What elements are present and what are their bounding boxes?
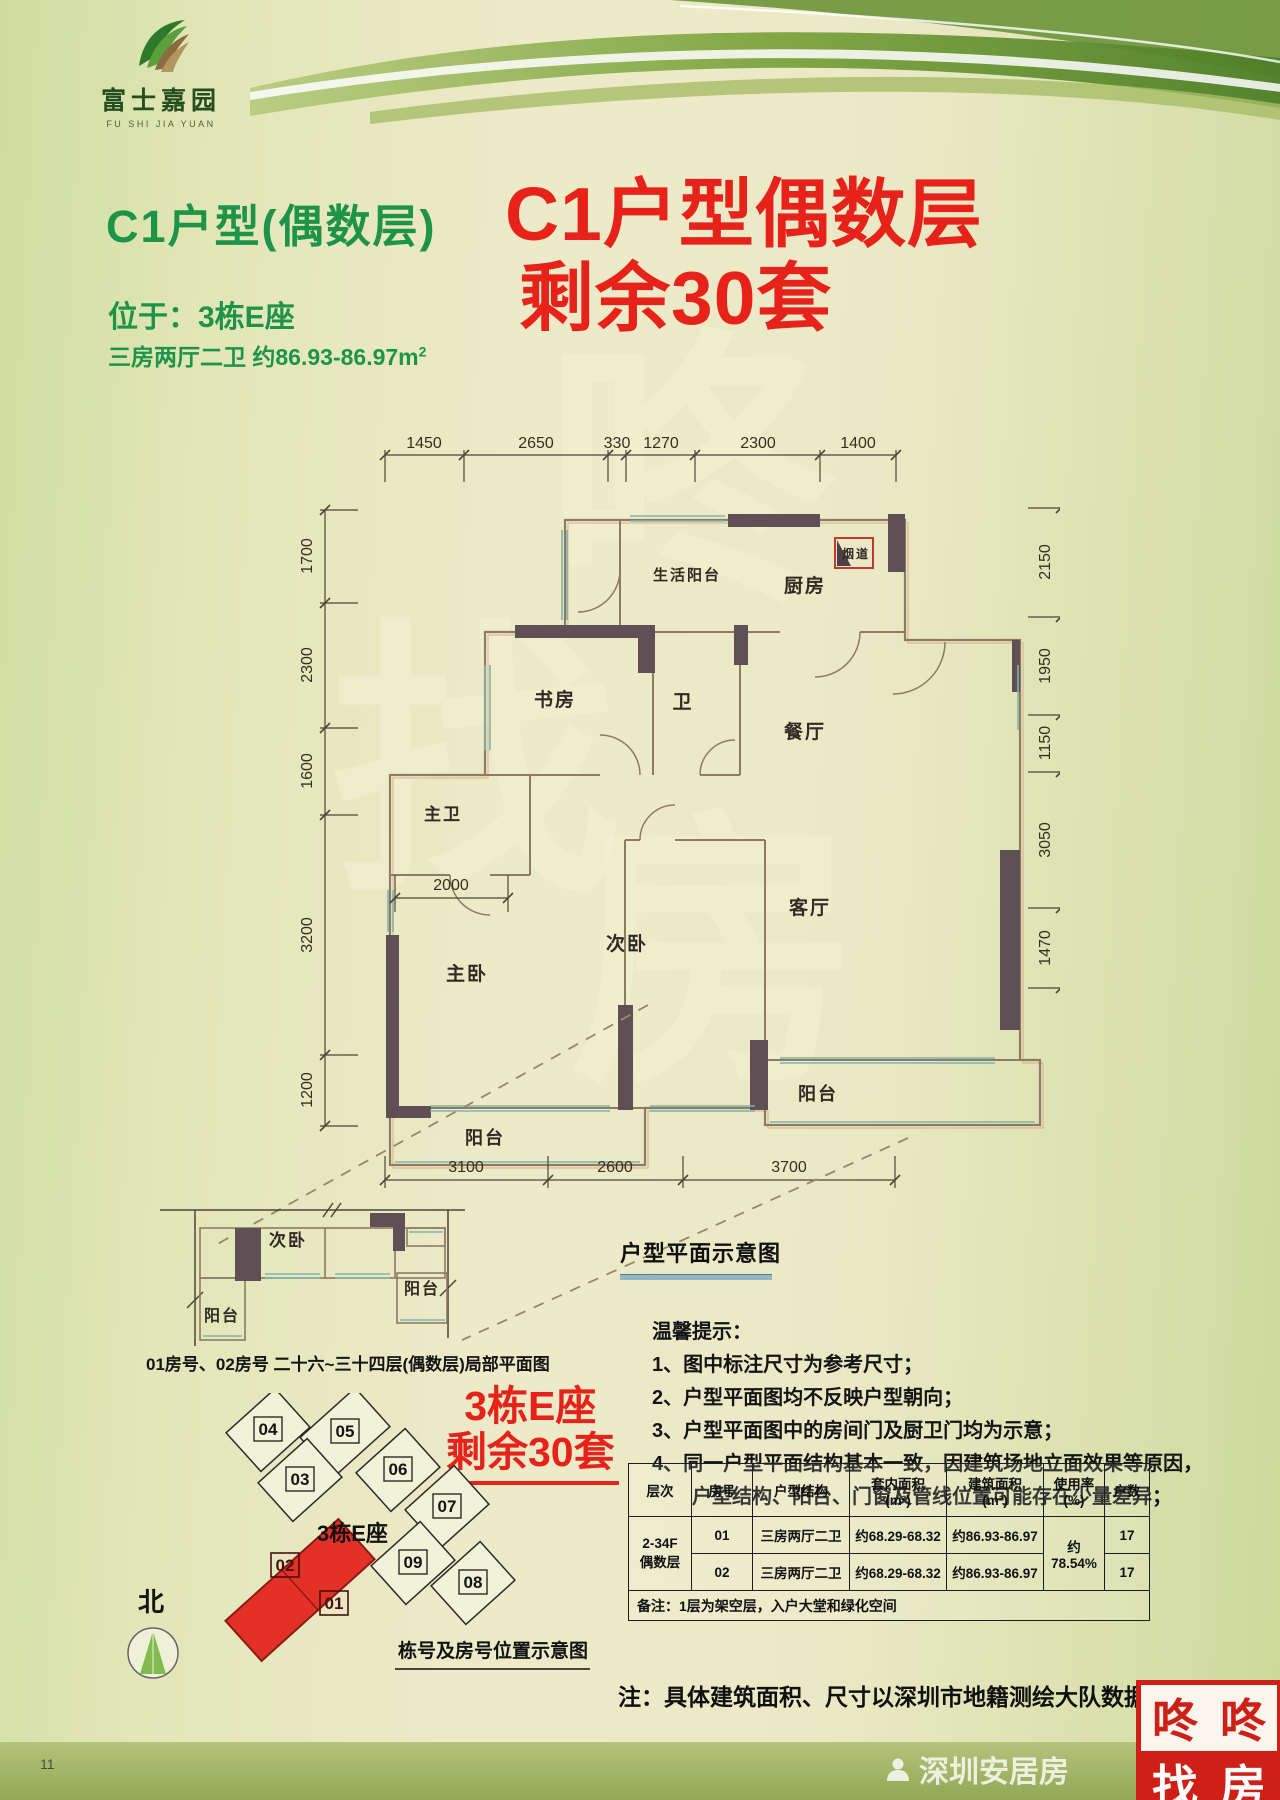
partial-plan-structural xyxy=(235,1213,405,1281)
partial-plan-caption: 01房号、02房号 二十六~三十四层(偶数层)局部平面图 xyxy=(146,1350,550,1375)
site-diagram: 04 05 03 06 07 09 08 02 01 3栋E座 北 栋号及房号位… xyxy=(120,1393,620,1728)
flue-box: 烟道 xyxy=(835,538,873,568)
warm-tip-2: 2、户型平面图均不反映户型朝向； xyxy=(652,1382,1203,1415)
svg-text:2300: 2300 xyxy=(740,435,776,452)
svg-text:1470: 1470 xyxy=(1037,930,1054,966)
room-label-balcony-right: 阳台 xyxy=(798,1083,838,1104)
stamp-char-2: 咚 xyxy=(1209,1685,1277,1751)
plan-schematic-caption-text: 户型平面示意图 xyxy=(620,1236,781,1268)
footer-watermark: 深圳安居房 xyxy=(884,1747,1069,1791)
unit-spec-text: 三房两厅二卫 约86.93-86.97m xyxy=(108,344,419,370)
stamp-char-1: 咚 xyxy=(1141,1685,1209,1751)
svg-text:3700: 3700 xyxy=(771,1159,807,1176)
svg-text:01: 01 xyxy=(325,1594,344,1613)
svg-text:2650: 2650 xyxy=(518,435,554,452)
stamp-char-4: 房 xyxy=(1209,1751,1277,1800)
bottom-band xyxy=(0,1742,1280,1800)
wechat-person-icon xyxy=(884,1755,912,1783)
svg-text:1270: 1270 xyxy=(643,435,679,452)
flyer-page: 富士嘉园 FU SHI JIA YUAN 咚 找 房 C1户型(偶数层) 位于：… xyxy=(0,0,1280,1800)
remaining-headline-line2: 剩余30套 xyxy=(519,256,983,340)
plan-structural-walls xyxy=(386,514,1020,1118)
room-label-master-bath: 主卫 xyxy=(424,804,462,824)
partial-room-balcony-left: 阳台 xyxy=(204,1306,240,1325)
site-caption: 栋号及房号位置示意图 xyxy=(398,1639,588,1662)
room-label-flue: 烟道 xyxy=(842,546,870,561)
table-header-row: 层次 房号 户型结构 套内面积(m²) 建筑面积(m²) 使用率(%) 户数 xyxy=(629,1464,1150,1517)
logo-name-en: FU SHI JIA YUAN xyxy=(86,119,236,129)
table-row: 2-34F偶数层 01 三房两厅二卫 约68.29-68.32 约86.93-8… xyxy=(629,1517,1150,1554)
room-label-service-balcony: 生活阳台 xyxy=(653,566,721,584)
developer-logo: 富士嘉园 FU SHI JIA YUAN xyxy=(86,14,236,129)
svg-text:1200: 1200 xyxy=(300,1072,316,1108)
plan-schematic-caption-underline xyxy=(620,1274,772,1280)
partial-plan-drawing: 次卧 阳台 阳台 xyxy=(145,1188,485,1358)
room-label-master-bedroom: 主卧 xyxy=(446,963,488,985)
svg-text:3200: 3200 xyxy=(300,917,316,953)
north-label: 北 xyxy=(138,1587,164,1617)
partial-room-balcony-right: 阳台 xyxy=(404,1279,440,1298)
room-label-study: 书房 xyxy=(534,688,576,711)
svg-text:07: 07 xyxy=(438,1497,457,1516)
north-indicator: 北 xyxy=(128,1587,178,1678)
room-label-living: 客厅 xyxy=(789,896,831,919)
unit-title: C1户型(偶数层) xyxy=(106,190,437,255)
remaining-headline: C1户型偶数层 剩余30套 xyxy=(505,172,983,340)
logo-name: 富士嘉园 xyxy=(86,81,236,117)
plan-outer-walls xyxy=(390,520,1040,1165)
svg-text:2300: 2300 xyxy=(300,647,316,683)
room-label-balcony-left: 阳台 xyxy=(465,1127,505,1148)
svg-text:330: 330 xyxy=(604,435,631,452)
svg-text:03: 03 xyxy=(291,1470,310,1489)
unit-location: 位于：3栋E座 xyxy=(108,292,295,336)
svg-text:08: 08 xyxy=(464,1573,483,1592)
unit-01-label: 01 xyxy=(320,1591,348,1615)
svg-text:1600: 1600 xyxy=(300,753,316,789)
room-label-kitchen: 厨房 xyxy=(784,574,826,597)
svg-text:04: 04 xyxy=(259,1420,278,1439)
table-remark-row: 备注：1层为架空层，入户大堂和绿化空间 xyxy=(629,1591,1150,1621)
site-building-label: 3栋E座 xyxy=(317,1521,388,1546)
room-label-second-bedroom: 次卧 xyxy=(606,932,648,955)
svg-text:02: 02 xyxy=(276,1556,295,1575)
room-label-bath: 卫 xyxy=(672,692,693,713)
svg-text:3050: 3050 xyxy=(1037,822,1054,858)
warm-tip-3: 3、户型平面图中的房间门及厨卫门均为示意； xyxy=(652,1415,1203,1448)
partial-room-second-bedroom: 次卧 xyxy=(269,1230,307,1250)
footer-watermark-text: 深圳安居房 xyxy=(919,1747,1069,1791)
plan-interior-walls xyxy=(390,520,1020,1108)
leaf-logo-icon xyxy=(129,14,193,74)
remaining-headline-line1: C1户型偶数层 xyxy=(505,172,983,256)
svg-text:2600: 2600 xyxy=(597,1159,633,1176)
svg-text:2150: 2150 xyxy=(1037,544,1054,580)
stamp-char-3: 找 xyxy=(1141,1751,1209,1800)
floorplan-drawing: 烟道 1450 2650 330 1270 2 xyxy=(300,420,1060,1210)
svg-text:2000: 2000 xyxy=(433,877,469,894)
top-wave-band xyxy=(250,0,1280,132)
warm-tips-title: 温馨提示： xyxy=(652,1316,1203,1349)
unit-spec-line: 三房两厅二卫 约86.93-86.97m2 xyxy=(108,338,426,372)
svg-text:1150: 1150 xyxy=(1037,726,1054,761)
svg-text:05: 05 xyxy=(336,1422,355,1441)
svg-text:3100: 3100 xyxy=(448,1159,484,1176)
unit-spec-sup: 2 xyxy=(419,343,427,359)
svg-text:1700: 1700 xyxy=(300,538,316,574)
dongdong-zhaofang-stamp: 咚 咚 找 房 xyxy=(1136,1680,1280,1800)
plan-accent-outline xyxy=(393,523,1043,1168)
dimension-labels: 1450 2650 330 1270 2300 1400 1700 2300 1… xyxy=(300,435,1054,1176)
svg-text:1400: 1400 xyxy=(840,435,876,452)
warm-tip-1: 1、图中标注尺寸为参考尺寸； xyxy=(652,1349,1203,1382)
svg-text:1450: 1450 xyxy=(406,435,442,452)
svg-text:09: 09 xyxy=(404,1553,423,1572)
room-label-dining: 餐厅 xyxy=(784,720,826,743)
plan-schematic-caption: 户型平面示意图 xyxy=(620,1236,781,1280)
page-number: 11 xyxy=(40,1756,55,1772)
unit-spec-table: 层次 房号 户型结构 套内面积(m²) 建筑面积(m²) 使用率(%) 户数 2… xyxy=(628,1463,1150,1621)
svg-text:1950: 1950 xyxy=(1037,648,1054,684)
plan-doors xyxy=(450,570,945,915)
data-source-note: 注：具体建筑面积、尺寸以深圳市地籍测绘大队数据为准 xyxy=(618,1678,1193,1712)
svg-text:06: 06 xyxy=(389,1460,408,1479)
